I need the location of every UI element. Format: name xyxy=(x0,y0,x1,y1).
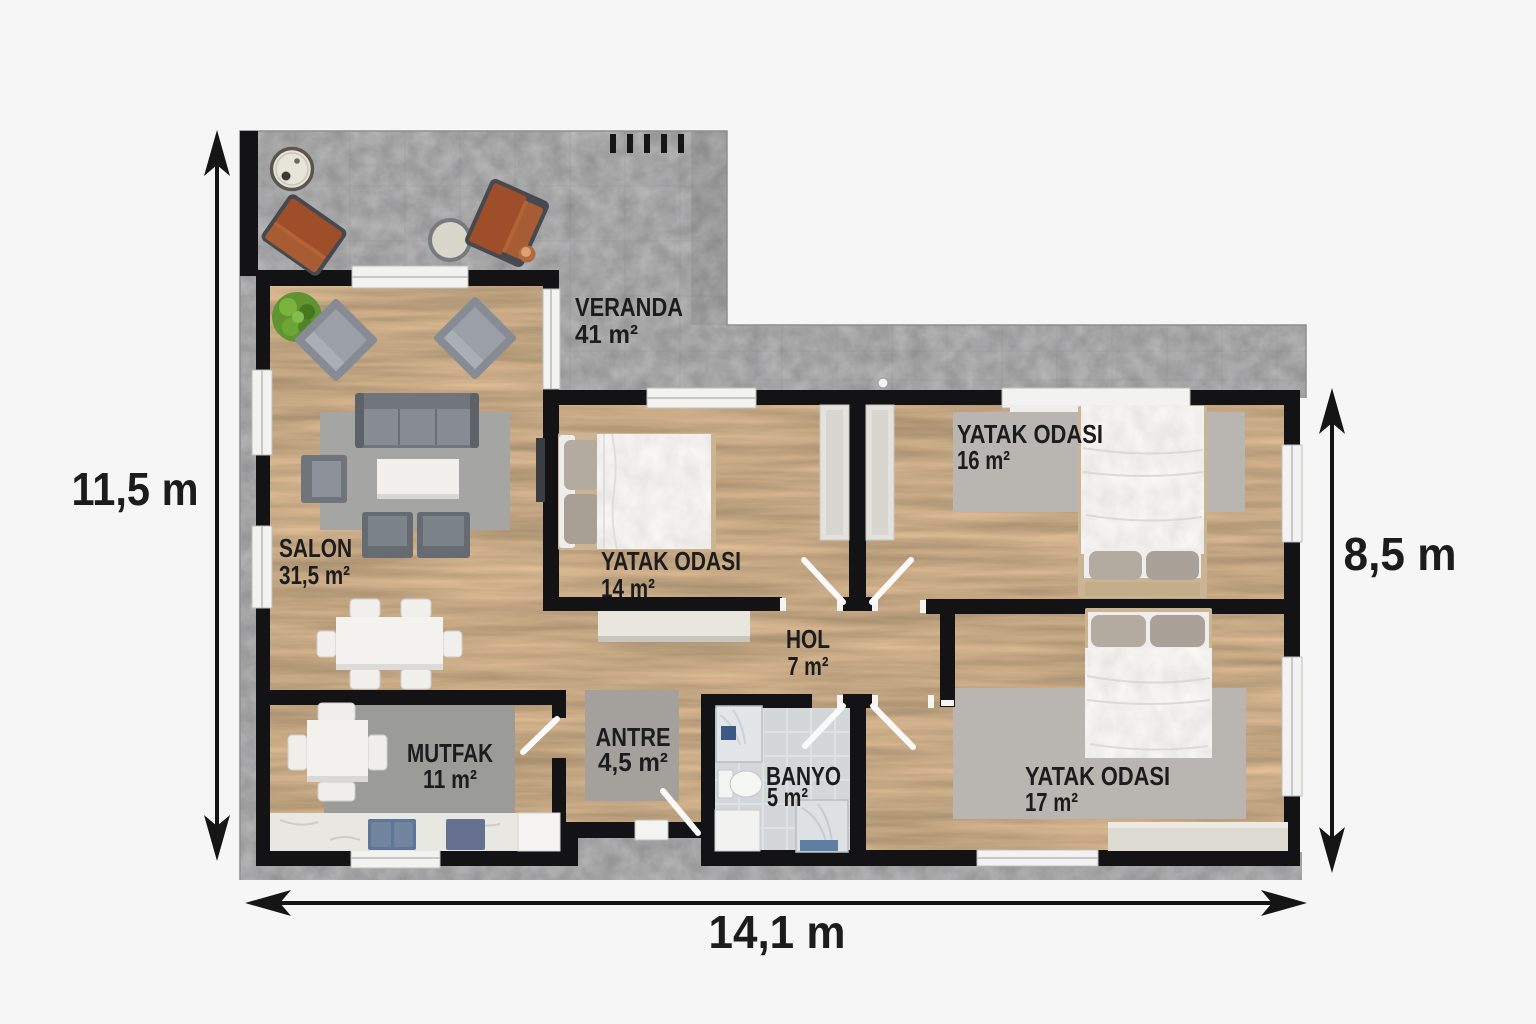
svg-text:14,1 m: 14,1 m xyxy=(709,906,846,958)
svg-text:HOL: HOL xyxy=(786,624,830,654)
svg-text:5 m²: 5 m² xyxy=(767,782,808,812)
svg-text:41 m²: 41 m² xyxy=(575,319,638,349)
svg-text:31,5 m²: 31,5 m² xyxy=(279,560,350,590)
svg-text:8,5 m: 8,5 m xyxy=(1344,528,1457,580)
svg-text:17 m²: 17 m² xyxy=(1025,787,1078,817)
svg-text:16 m²: 16 m² xyxy=(957,445,1010,475)
svg-text:4,5 m²: 4,5 m² xyxy=(598,747,668,777)
svg-text:SALON: SALON xyxy=(279,533,352,563)
svg-text:YATAK ODASI: YATAK ODASI xyxy=(601,546,741,576)
svg-text:11,5 m: 11,5 m xyxy=(72,463,199,515)
svg-text:11 m²: 11 m² xyxy=(423,764,477,794)
svg-text:7 m²: 7 m² xyxy=(788,651,829,681)
svg-text:VERANDA: VERANDA xyxy=(575,292,683,322)
svg-text:14 m²: 14 m² xyxy=(601,573,655,603)
